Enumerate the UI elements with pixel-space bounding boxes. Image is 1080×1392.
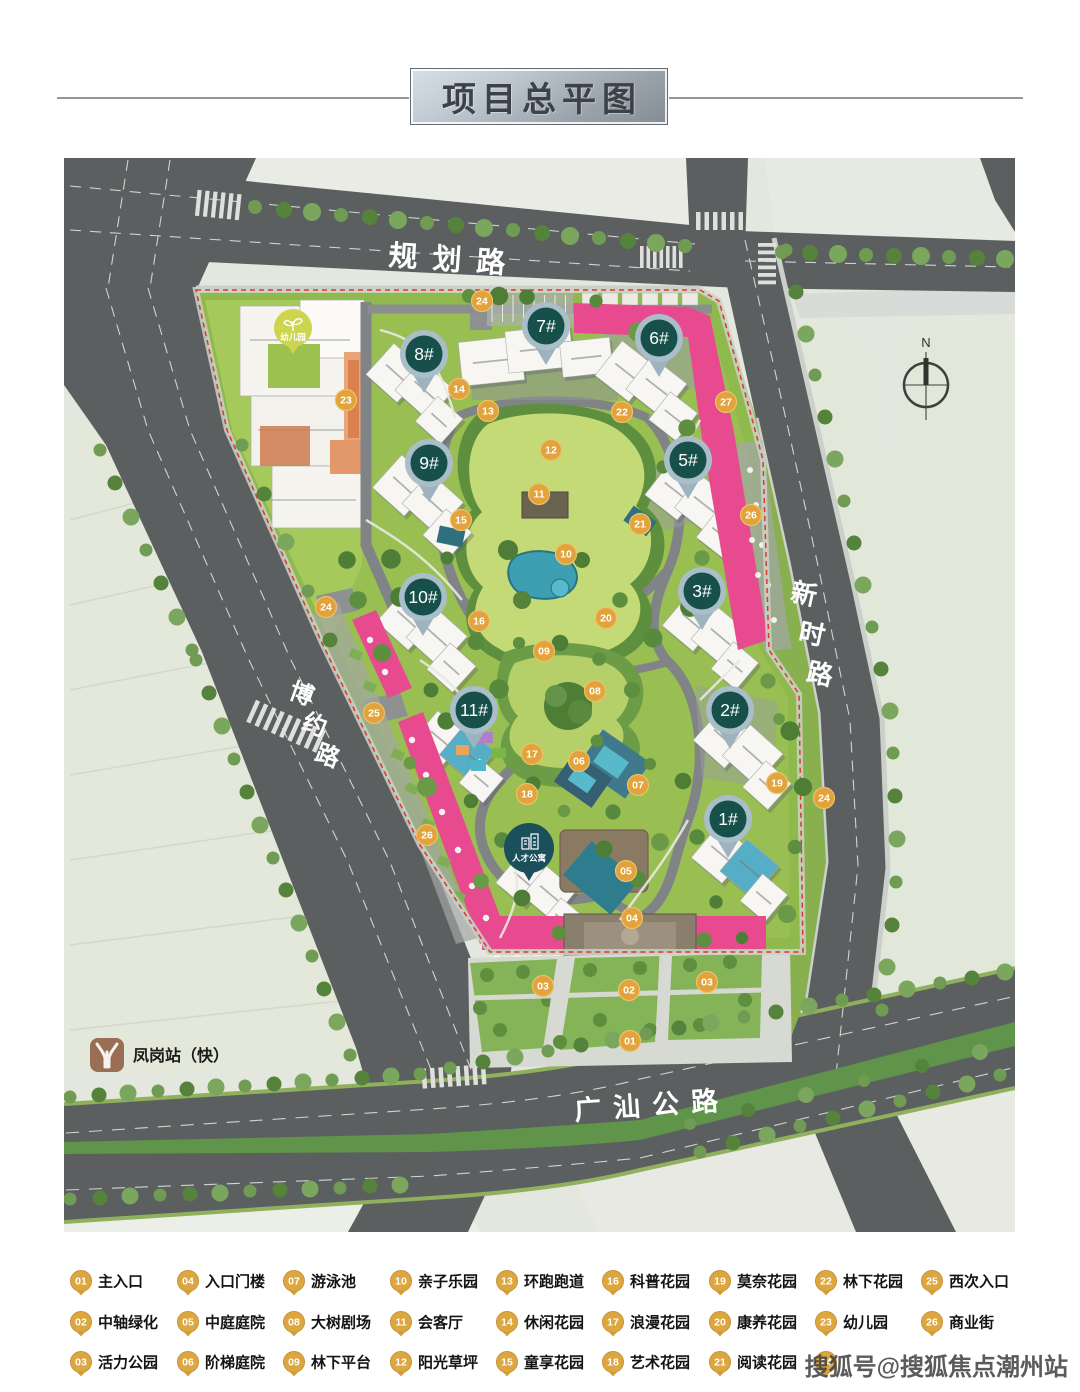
svg-text:23: 23 bbox=[820, 1317, 832, 1329]
svg-text:阶梯庭院: 阶梯庭院 bbox=[205, 1354, 265, 1372]
svg-text:西次入口: 西次入口 bbox=[949, 1273, 1009, 1291]
svg-text:中庭庭院: 中庭庭院 bbox=[205, 1314, 265, 1332]
svg-text:亲子乐园: 亲子乐园 bbox=[418, 1273, 478, 1291]
svg-text:08: 08 bbox=[288, 1317, 300, 1329]
svg-text:20: 20 bbox=[714, 1317, 726, 1329]
svg-text:02: 02 bbox=[75, 1317, 87, 1329]
svg-text:入口门楼: 入口门楼 bbox=[205, 1273, 265, 1291]
svg-text:21: 21 bbox=[714, 1357, 726, 1369]
svg-text:艺术花园: 艺术花园 bbox=[630, 1354, 690, 1372]
svg-text:16: 16 bbox=[607, 1276, 619, 1288]
svg-text:03: 03 bbox=[75, 1357, 87, 1369]
svg-text:10: 10 bbox=[395, 1276, 407, 1288]
svg-text:大树剧场: 大树剧场 bbox=[311, 1314, 371, 1332]
svg-text:07: 07 bbox=[288, 1276, 300, 1288]
svg-text:科普花园: 科普花园 bbox=[630, 1273, 690, 1291]
svg-text:25: 25 bbox=[926, 1276, 938, 1288]
svg-text:会客厅: 会客厅 bbox=[418, 1314, 463, 1332]
svg-text:19: 19 bbox=[714, 1276, 726, 1288]
svg-text:环跑跑道: 环跑跑道 bbox=[524, 1273, 584, 1291]
svg-text:幼儿园: 幼儿园 bbox=[843, 1314, 888, 1332]
svg-text:11: 11 bbox=[395, 1317, 406, 1329]
svg-text:14: 14 bbox=[501, 1317, 513, 1329]
svg-text:林下花园: 林下花园 bbox=[843, 1273, 903, 1291]
svg-text:林下平台: 林下平台 bbox=[311, 1354, 371, 1372]
svg-text:商业街: 商业街 bbox=[949, 1314, 994, 1332]
svg-text:莫奈花园: 莫奈花园 bbox=[737, 1273, 797, 1291]
svg-text:阅读花园: 阅读花园 bbox=[737, 1354, 797, 1372]
svg-text:搜狐号@搜狐焦点潮州站: 搜狐号@搜狐焦点潮州站 bbox=[805, 1353, 1068, 1381]
svg-text:17: 17 bbox=[607, 1317, 619, 1329]
svg-text:22: 22 bbox=[820, 1276, 832, 1288]
svg-text:活力公园: 活力公园 bbox=[98, 1354, 158, 1372]
svg-text:阳光草坪: 阳光草坪 bbox=[418, 1354, 478, 1372]
svg-text:主入口: 主入口 bbox=[98, 1273, 143, 1291]
svg-text:休闲花园: 休闲花园 bbox=[523, 1314, 584, 1332]
svg-text:12: 12 bbox=[395, 1357, 407, 1369]
svg-text:游泳池: 游泳池 bbox=[311, 1273, 356, 1291]
svg-text:01: 01 bbox=[75, 1276, 87, 1288]
svg-text:05: 05 bbox=[182, 1317, 194, 1329]
svg-text:26: 26 bbox=[926, 1317, 938, 1329]
svg-text:04: 04 bbox=[182, 1276, 194, 1288]
svg-text:13: 13 bbox=[501, 1276, 513, 1288]
svg-text:中轴绿化: 中轴绿化 bbox=[98, 1314, 158, 1332]
svg-text:浪漫花园: 浪漫花园 bbox=[630, 1314, 690, 1332]
svg-text:18: 18 bbox=[607, 1357, 619, 1369]
svg-text:06: 06 bbox=[182, 1357, 194, 1369]
svg-text:09: 09 bbox=[288, 1357, 300, 1369]
svg-text:15: 15 bbox=[501, 1357, 513, 1369]
svg-text:康养花园: 康养花园 bbox=[737, 1314, 797, 1332]
svg-text:童享花园: 童享花园 bbox=[524, 1354, 584, 1372]
